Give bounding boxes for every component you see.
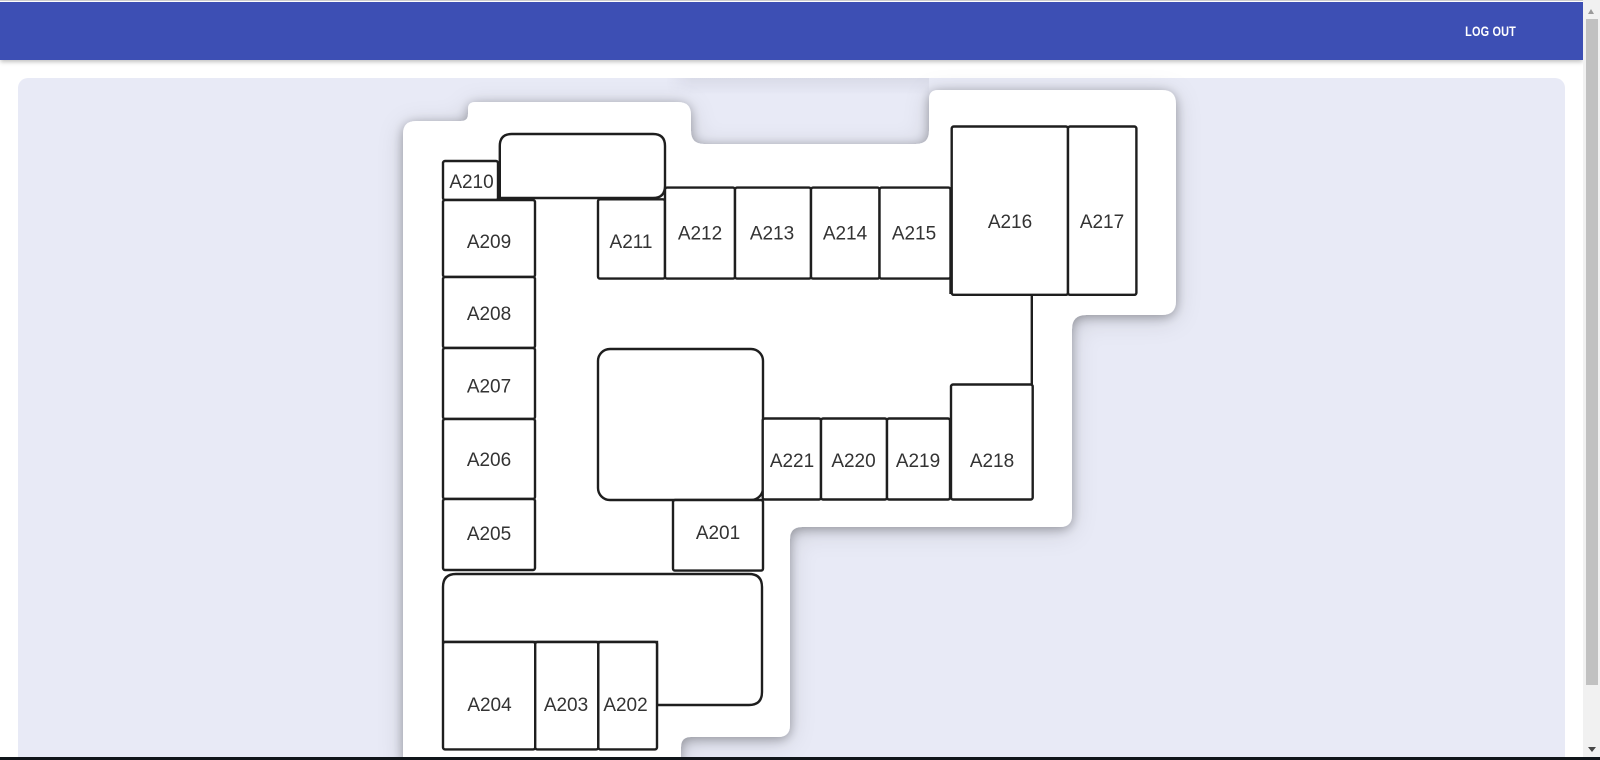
svg-text:A203: A203: [544, 695, 588, 716]
svg-text:A215: A215: [892, 224, 936, 245]
svg-text:A212: A212: [678, 224, 722, 245]
svg-text:A217: A217: [1080, 212, 1124, 233]
svg-text:A206: A206: [467, 450, 511, 471]
svg-text:A201: A201: [696, 523, 740, 544]
svg-text:A208: A208: [467, 304, 511, 325]
svg-text:A202: A202: [603, 695, 647, 716]
svg-text:A219: A219: [896, 451, 940, 472]
svg-text:A218: A218: [970, 451, 1014, 472]
svg-text:A205: A205: [467, 524, 511, 545]
svg-text:A207: A207: [467, 377, 511, 398]
svg-text:A204: A204: [467, 695, 512, 716]
svg-text:A209: A209: [467, 232, 511, 253]
svg-text:A220: A220: [831, 451, 875, 472]
svg-text:A211: A211: [610, 232, 653, 253]
svg-text:A221: A221: [770, 451, 814, 472]
svg-text:A210: A210: [449, 172, 493, 193]
svg-text:A216: A216: [988, 212, 1032, 233]
svg-text:A213: A213: [750, 224, 794, 245]
svg-text:A214: A214: [823, 224, 868, 245]
